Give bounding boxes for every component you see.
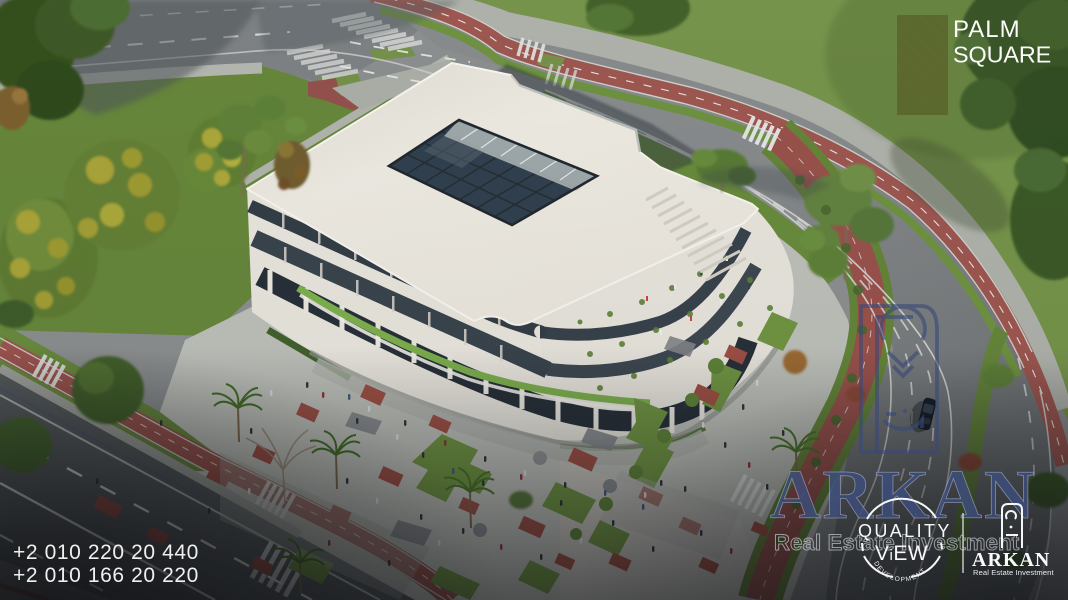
svg-text:PALM: PALM xyxy=(953,16,1021,43)
svg-text:Real Estate Investment: Real Estate Investment xyxy=(973,568,1054,577)
svg-text:+2 010 166 20 220: +2 010 166 20 220 xyxy=(13,564,199,587)
svg-text:QUALITY: QUALITY xyxy=(858,521,952,541)
svg-text:ViEW: ViEW xyxy=(875,542,928,565)
svg-text:SQUARE: SQUARE xyxy=(953,42,1051,68)
svg-text:+2 010 220 20 440: +2 010 220 20 440 xyxy=(13,541,199,564)
